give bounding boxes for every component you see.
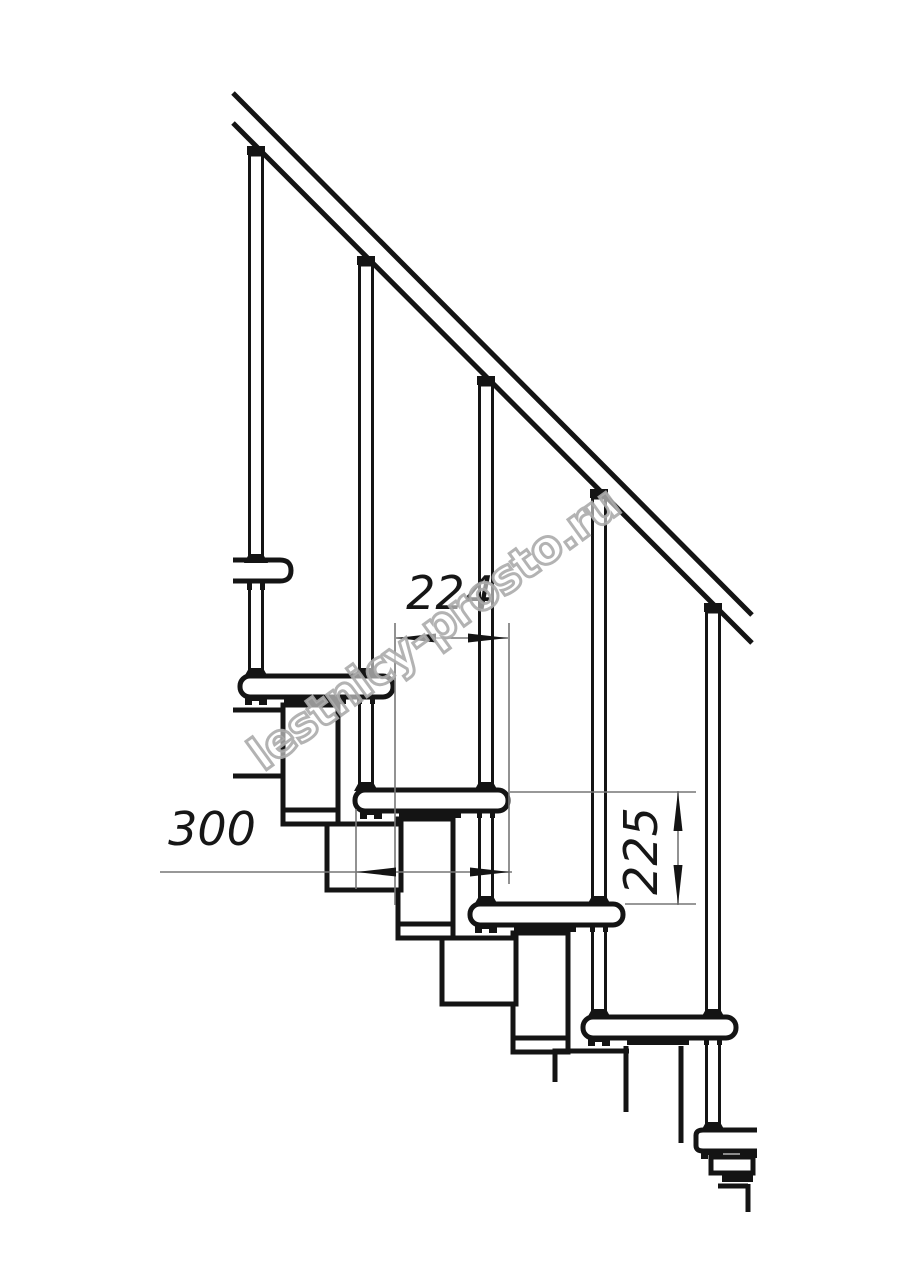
tread-2 <box>355 790 508 811</box>
module-vertical-3 <box>513 933 568 1052</box>
module-vertical-2 <box>398 819 453 938</box>
bottom-foot-cut <box>711 1157 753 1212</box>
baluster-5 <box>707 612 720 1132</box>
baluster-3 <box>480 385 493 906</box>
tread-3 <box>470 904 623 925</box>
module-square-3-cut <box>555 1051 629 1082</box>
baluster-1 <box>250 155 263 678</box>
dimension-label-300: 300 <box>168 806 256 852</box>
module-square-2 <box>442 938 516 1004</box>
drawing-canvas: 224 300 225 lestnicy-prosto.ru <box>0 0 914 1280</box>
tread-4 <box>583 1017 736 1038</box>
module-square-1 <box>327 824 401 890</box>
tread-top-cut <box>233 560 291 581</box>
module-vertical-4-cut <box>626 1046 681 1143</box>
baluster-4 <box>593 498 606 1019</box>
tread-bottom-cut <box>696 1130 757 1151</box>
dimension-label-225: 225 <box>618 801 664 901</box>
